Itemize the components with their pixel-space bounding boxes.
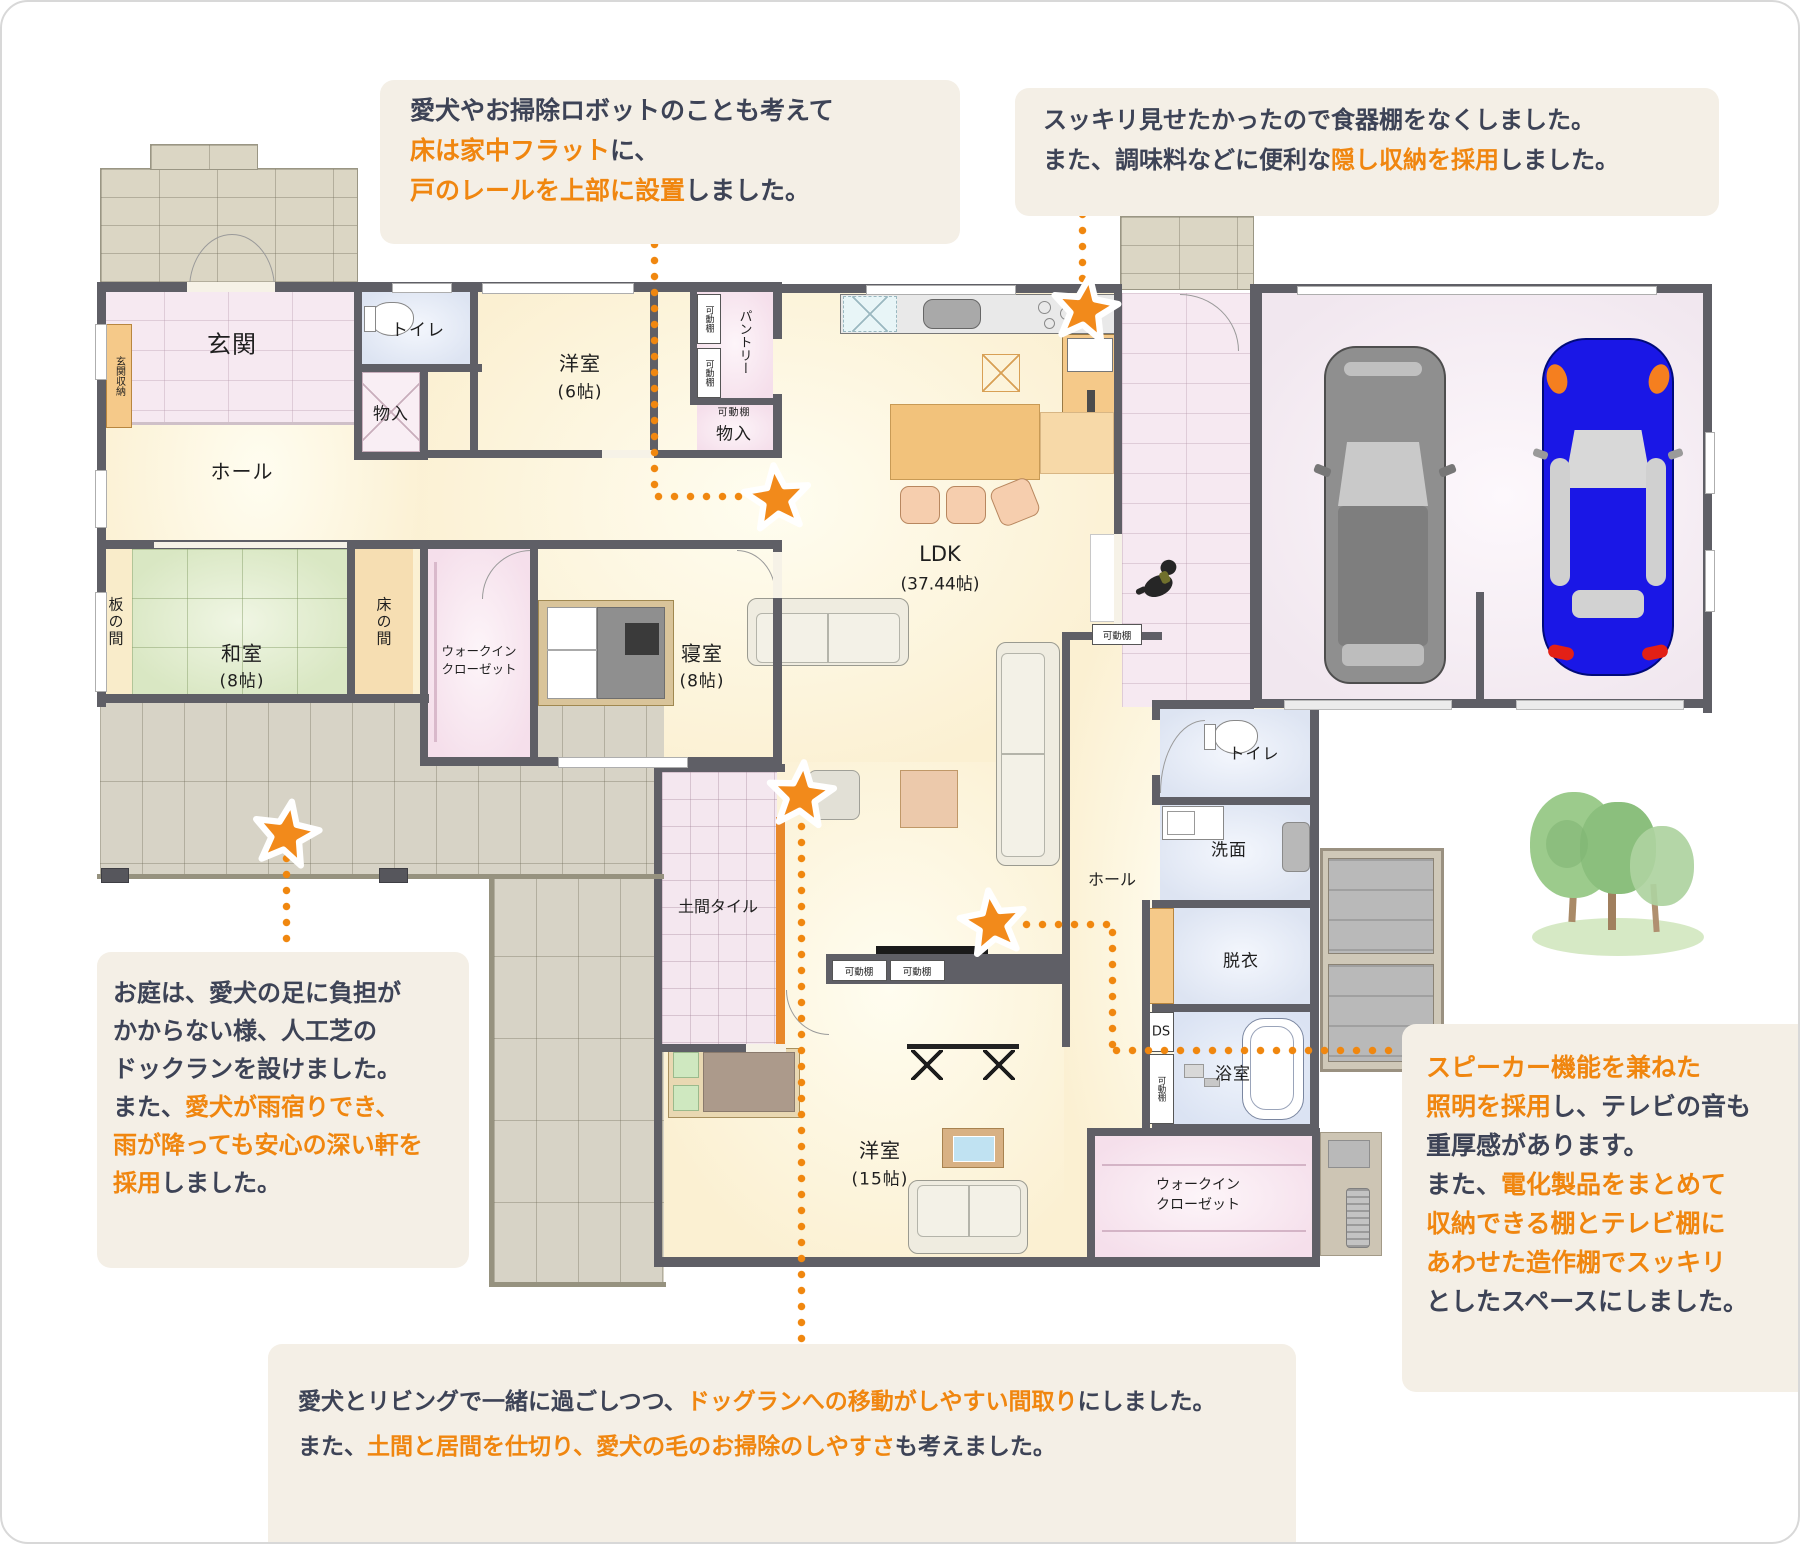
label-washitsu: 和室 <box>221 638 263 667</box>
wall-segment <box>347 540 355 702</box>
washer <box>1282 822 1310 872</box>
annotation-line: ドックランを設けました。 <box>113 1050 453 1088</box>
bed-pillow-dark <box>625 623 659 655</box>
annotation-line: 収納できる棚とテレビ棚に <box>1426 1204 1800 1243</box>
wall-segment <box>1312 1128 1320 1267</box>
label-itanoma: 板の間 <box>106 597 127 648</box>
annotation-text: しました。 <box>685 176 810 205</box>
window <box>558 757 688 768</box>
floorplan: 玄関 玄関収納 ホール トイレ 物入 洋室 (6帖) パントリー 可動棚 可動棚… <box>2 2 1800 1544</box>
label-tokonoma: 床の間 <box>374 597 395 648</box>
play-table <box>942 1128 1004 1168</box>
annotation-text: ドッグランへの移動がしやすい間取り <box>687 1389 1078 1415</box>
annotation-line: 採用しました。 <box>113 1164 453 1202</box>
annotation-line: 戸のレールを上部に設置しました。 <box>410 171 930 211</box>
wall-segment <box>1152 775 1160 801</box>
wall-segment <box>1152 700 1160 720</box>
side-table <box>900 770 958 828</box>
garage-door <box>1516 700 1684 710</box>
annotation-text: また、調味料などに便利な <box>1043 146 1331 174</box>
garage-door <box>1284 700 1452 710</box>
annotation-text: かからない様、人工芝の <box>113 1017 377 1045</box>
dining-chair-1 <box>900 486 940 524</box>
window <box>95 324 107 380</box>
entry-porch-step <box>150 144 258 170</box>
x-leg-bench <box>907 1044 1019 1082</box>
label-ldk-size: (37.44帖) <box>901 570 980 595</box>
outdoor-shelf-upper <box>1328 858 1434 954</box>
dogrun-deck-wide <box>100 699 664 877</box>
toilet-tank-1 <box>364 306 376 332</box>
annotation-text: 雨が降っても安心の深い軒を <box>113 1131 423 1159</box>
annotation-text: としたスペースにしました。 <box>1426 1287 1748 1316</box>
wall-segment <box>420 540 428 766</box>
label-wic2-line1: ウォークイン <box>1156 1174 1240 1194</box>
annotation-text: 電化製品をまとめて <box>1501 1170 1726 1199</box>
wall-segment <box>97 694 429 703</box>
wall-segment <box>1152 1004 1319 1012</box>
label-kadoudana-s2: 可動棚 <box>718 404 751 419</box>
label-youshitsu15-size: (15帖) <box>852 1165 909 1190</box>
label-youshitsu15: 洋室 <box>859 1135 901 1164</box>
annotation-text: 照明を採用 <box>1426 1092 1551 1121</box>
wall-segment <box>420 364 428 458</box>
wall-segment <box>1152 900 1319 908</box>
annotation-line: スピーカー機能を兼ねた <box>1426 1048 1800 1087</box>
bed-mattress <box>547 607 597 699</box>
label-pantry: パントリー <box>735 310 754 375</box>
wic2-rod-bottom <box>1102 1230 1306 1232</box>
annotation-line: また、調味料などに便利な隠し収納を採用しました。 <box>1043 140 1691 180</box>
annotation-line: お庭は、愛犬の足に負担が <box>113 974 453 1012</box>
toilet-tank-2 <box>1204 724 1216 750</box>
label-toilet-1: トイレ <box>391 316 445 341</box>
annotation-line: スッキリ見せたかったので食器棚をなくしました。 <box>1043 100 1691 140</box>
daybed-blanket <box>703 1052 795 1112</box>
label-hall-1: ホール <box>211 456 274 485</box>
door-opening <box>154 542 347 548</box>
wall-segment <box>1062 632 1070 1047</box>
annotation-text: お庭は、愛犬の足に負担が <box>113 979 401 1007</box>
label-storage-1: 物入 <box>373 400 409 425</box>
car-blue-sports <box>1542 338 1674 676</box>
wall-segment <box>420 450 782 458</box>
label-storage-2: 物入 <box>716 420 752 445</box>
annotation-text: スピーカー機能を兼ねた <box>1426 1053 1701 1082</box>
window <box>866 285 1016 295</box>
bed-master <box>538 600 674 706</box>
wall-segment <box>354 452 428 460</box>
window <box>1297 286 1657 295</box>
annotation-hidden-storage: スッキリ見せたかったので食器棚をなくしました。また、調味料などに便利な隠し収納を… <box>1015 88 1719 216</box>
label-kadoudana-hall: 可動棚 <box>1103 628 1132 642</box>
wall-segment <box>773 394 782 458</box>
bathtub <box>1242 1018 1304 1120</box>
kitchen-sink <box>923 299 981 329</box>
ac-unit <box>1346 1188 1370 1248</box>
annotation-line: 愛犬とリビングで一緒に過ごしつつ、ドッグランへの移動がしやすい間取りにしました。 <box>298 1380 1266 1425</box>
outdoor-pad-step <box>1328 1140 1370 1168</box>
label-ds: DS <box>1152 1025 1170 1040</box>
star-doma <box>761 756 841 836</box>
label-doma-tile: 土間タイル <box>678 893 758 917</box>
wall-segment <box>1250 284 1262 708</box>
window <box>1705 550 1715 612</box>
connector-doorrail-v <box>650 224 659 492</box>
dining-table-ext <box>1040 412 1114 474</box>
annotation-text: 採用 <box>113 1169 161 1197</box>
label-bath: 浴室 <box>1215 1060 1251 1085</box>
step-stone <box>101 868 129 883</box>
window <box>95 470 107 528</box>
annotation-line: としたスペースにしました。 <box>1426 1282 1800 1321</box>
annotation-text: 床は家中フラット <box>410 136 610 165</box>
annotation-dogrun-layout: 愛犬とリビングで一緒に過ごしつつ、ドッグランへの移動がしやすい間取りにしました。… <box>268 1344 1296 1544</box>
connector-speaker-h2 <box>1112 1046 1400 1055</box>
annotation-text: に、 <box>610 136 659 165</box>
wall-segment <box>354 364 362 460</box>
annotation-floor-flat: 愛犬やお掃除ロボットのことも考えて床は家中フラットに、戸のレールを上部に設置しま… <box>380 80 960 244</box>
label-datsui: 脱衣 <box>1223 947 1259 972</box>
annotation-text: あわせた造作棚でスッキリ <box>1426 1248 1726 1277</box>
label-genkan-storage: 玄関収納 <box>112 356 127 396</box>
sofa-long <box>747 598 909 666</box>
annotation-line: 照明を採用し、テレビの音も <box>1426 1087 1800 1126</box>
annotation-text: 土間と居間を仕切り、愛犬の毛のお掃除のしやすさ <box>367 1434 895 1460</box>
wall-segment <box>654 1257 1320 1267</box>
step-stone <box>379 868 408 883</box>
annotation-text: また、 <box>298 1434 367 1460</box>
annotation-line: 愛犬やお掃除ロボットのことも考えて <box>410 91 930 131</box>
annotation-text: も考えました。 <box>895 1434 1056 1460</box>
annotation-text: しました。 <box>1499 146 1619 174</box>
annotation-text: 隠し収納を採用 <box>1331 146 1499 174</box>
window <box>392 283 452 293</box>
annotation-line: また、愛犬が雨宿りでき、 <box>113 1088 453 1126</box>
label-wic1-line2: クローゼット <box>441 659 516 678</box>
annotation-line: また、電化製品をまとめて <box>1426 1165 1800 1204</box>
wall-segment <box>354 284 362 372</box>
door-opening <box>1114 534 1122 624</box>
annotation-text: また、 <box>113 1093 185 1121</box>
wic2-rod-top <box>1102 1164 1306 1166</box>
door-opening <box>187 282 275 292</box>
annotation-text: スッキリ見せたかったので食器棚をなくしました。 <box>1043 106 1595 134</box>
sofa-side <box>996 642 1060 866</box>
annotation-text: 愛犬とリビングで一緒に過ごしつつ、 <box>298 1389 687 1415</box>
wall-segment <box>530 540 538 766</box>
daybed-pillow-1 <box>673 1052 699 1078</box>
dogrun-deck-strip <box>494 874 664 1284</box>
wall-segment <box>420 540 782 549</box>
window <box>1705 432 1715 494</box>
label-youshitsu6: 洋室 <box>559 348 601 377</box>
datsui-cabinet <box>1149 908 1174 1004</box>
kitchen-sink-tile <box>843 296 897 332</box>
wall-segment <box>1310 700 1319 1132</box>
connector-speaker-h1 <box>1022 920 1112 929</box>
wall-segment <box>773 284 782 339</box>
annotation-text: 愛犬やお掃除ロボットのことも考えて <box>410 96 834 125</box>
wall-segment <box>654 764 662 1052</box>
car-gray-van <box>1324 346 1446 684</box>
annotation-garden-dogrun: お庭は、愛犬の足に負担がかからない様、人工芝のドックランを設けました。また、愛犬… <box>97 952 469 1268</box>
label-youshitsu6-size: (6帖) <box>557 378 602 403</box>
doma-partition-orange <box>776 817 785 1044</box>
connector-dogrun-move <box>797 822 806 1344</box>
floorplan-page: 玄関 玄関収納 ホール トイレ 物入 洋室 (6帖) パントリー 可動棚 可動棚… <box>0 0 1800 1544</box>
wall-segment <box>354 364 482 372</box>
annotation-line: 雨が降っても安心の深い軒を <box>113 1126 453 1164</box>
label-genkan: 玄関 <box>207 325 257 360</box>
deck-edge <box>489 1282 666 1287</box>
grass <box>1532 918 1704 956</box>
wall-segment <box>1703 284 1712 713</box>
annotation-speaker-light: スピーカー機能を兼ねた照明を採用し、テレビの音も重厚感があります。また、電化製品… <box>1402 1024 1800 1392</box>
wall-segment <box>690 284 697 405</box>
label-ldk: LDK <box>919 542 961 566</box>
door-opening <box>773 552 782 598</box>
sofa-youshitsu15 <box>908 1180 1028 1254</box>
label-shinshitsu: 寝室 <box>681 638 723 667</box>
tree-canopy-3 <box>1630 826 1694 906</box>
connector-speaker-v <box>1108 928 1117 1050</box>
label-kadoudana-tv2: 可動棚 <box>903 964 932 978</box>
annotation-line: 床は家中フラットに、 <box>410 131 930 171</box>
annotation-text: 戸のレールを上部に設置 <box>410 176 685 205</box>
wall-segment <box>470 284 478 458</box>
wall-segment <box>1476 592 1484 702</box>
window <box>482 283 634 294</box>
wall-segment <box>1087 1128 1320 1136</box>
label-wic1-line1: ウォークイン <box>441 641 516 660</box>
label-washitsu-size: (8帖) <box>219 667 264 692</box>
deck-edge <box>489 879 494 1286</box>
dining-chair-2 <box>946 486 986 524</box>
wall-segment <box>1159 700 1254 709</box>
annotation-text: 重厚感があります。 <box>1426 1131 1649 1160</box>
daybed <box>668 1048 800 1118</box>
trees-illustration <box>1512 792 1712 962</box>
daybed-pillow-2 <box>673 1085 699 1111</box>
label-shinshitsu-size: (8帖) <box>679 667 724 692</box>
label-kadoudana-p2: 可動棚 <box>703 360 716 387</box>
label-kadoudana-tv1: 可動棚 <box>845 964 874 978</box>
annotation-line: また、土間と居間を仕切り、愛犬の毛のお掃除のしやすさも考えました。 <box>298 1425 1266 1470</box>
wall-segment <box>654 1044 662 1266</box>
wall-segment <box>1142 900 1150 1132</box>
genkan-step-line <box>132 422 356 425</box>
annotation-line: あわせた造作棚でスッキリ <box>1426 1243 1800 1282</box>
label-kadoudana-p1: 可動棚 <box>703 306 716 333</box>
star-garden <box>243 792 329 878</box>
annotation-text: にしました。 <box>1077 1389 1215 1415</box>
wall-segment <box>654 1044 748 1052</box>
annotation-text: ドックランを設けました。 <box>113 1055 401 1083</box>
label-senmen: 洗面 <box>1211 836 1247 861</box>
wic1-rod <box>434 562 437 742</box>
van-windshield <box>1338 442 1428 506</box>
star-kitchen <box>1043 268 1127 352</box>
annotation-text: 収納できる棚とテレビ棚に <box>1426 1209 1726 1238</box>
label-toilet-2: トイレ <box>1228 740 1279 764</box>
label-wic2-line2: クローゼット <box>1156 1194 1240 1214</box>
annotation-text: しました。 <box>161 1169 281 1197</box>
annotation-line: かからない様、人工芝の <box>113 1012 453 1050</box>
door-opening <box>746 1044 786 1052</box>
tree-shade <box>1546 820 1588 868</box>
annotation-text: 愛犬が雨宿りでき、 <box>185 1093 399 1121</box>
pillar-marker <box>982 354 1020 392</box>
wall-segment <box>1152 797 1319 805</box>
annotation-line: 重厚感があります。 <box>1426 1126 1800 1165</box>
shower-stool <box>1184 1064 1204 1078</box>
wall-segment <box>1087 1128 1095 1267</box>
bluecar-windshield <box>1564 430 1652 488</box>
annotation-text: し、テレビの音も <box>1551 1092 1751 1121</box>
rear-porch <box>1120 216 1254 290</box>
label-kadoudana-bath: 可動棚 <box>1155 1076 1167 1102</box>
star-tv <box>951 882 1035 966</box>
star-door-rail <box>736 458 817 539</box>
door-opening <box>602 450 654 458</box>
label-hall-2: ホール <box>1088 866 1136 890</box>
annotation-text: また、 <box>1426 1170 1501 1199</box>
dining-table <box>890 404 1040 480</box>
